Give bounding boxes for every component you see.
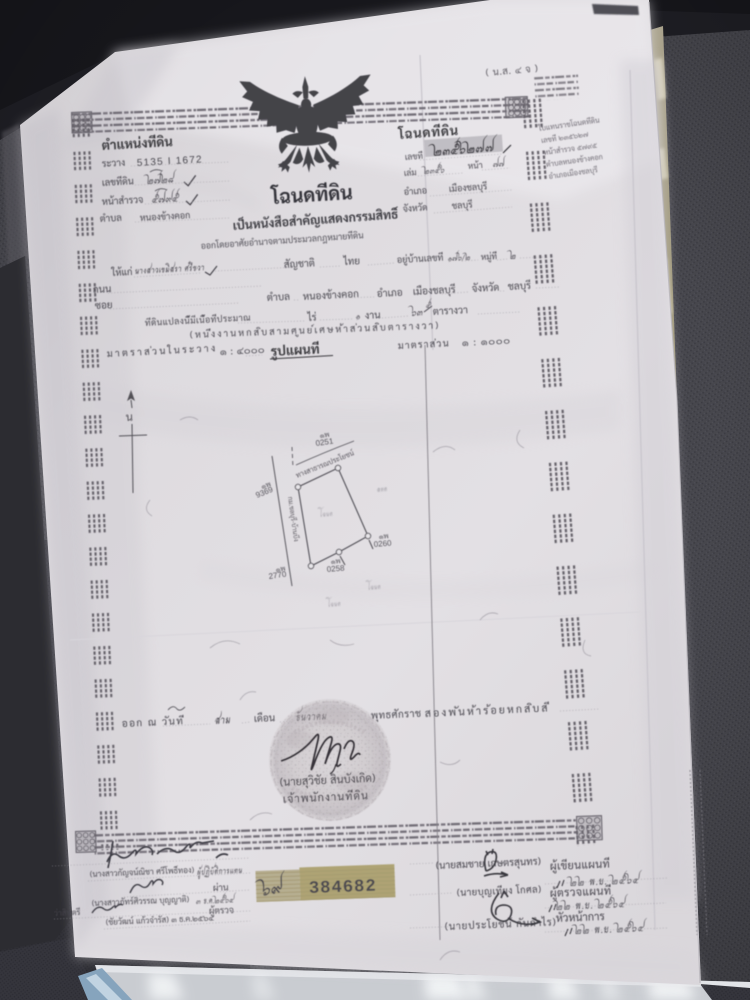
svg-text:0260: 0260 [373,538,392,549]
svg-text:384682: 384682 [309,877,377,899]
svg-text:0258: 0258 [326,563,345,574]
